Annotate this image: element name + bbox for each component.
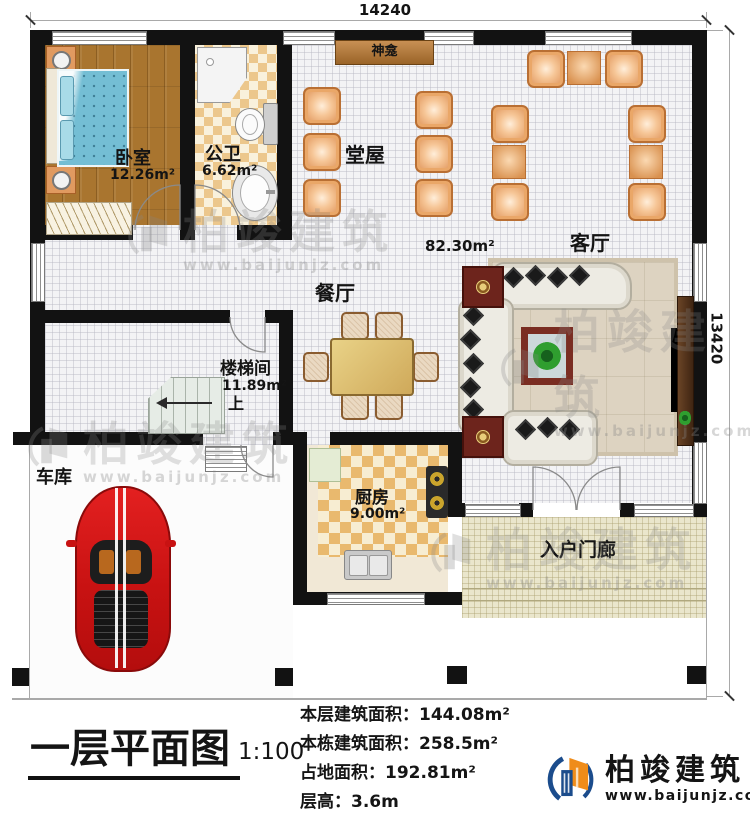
side-table (462, 266, 504, 308)
nightstand (46, 166, 76, 194)
dining-table (330, 338, 414, 396)
floorplan-canvas: 14240 13420 (0, 0, 750, 817)
hall-chair (303, 179, 341, 217)
kitchen-label: 厨房 (355, 489, 389, 508)
stairs-direction-line (166, 402, 212, 404)
plan-stats: 本层建筑面积：144.08m² 本栋建筑面积：258.5m² 占地面积：192.… (300, 701, 510, 817)
car-mirror (66, 540, 77, 547)
side-table (462, 416, 504, 458)
kitchen-area: 9.00m² (350, 507, 405, 522)
rosette-icon (476, 430, 490, 444)
toilet (235, 108, 265, 141)
hall-tea-table (492, 145, 526, 179)
dining-chair (341, 312, 369, 340)
bedroom-label: 卧室 (115, 149, 151, 169)
stat-line: 占地面积：192.81m² (300, 759, 510, 788)
stat-line: 本栋建筑面积：258.5m² (300, 730, 510, 759)
hall-tea-table (629, 145, 663, 179)
car-stripe (115, 488, 118, 668)
car-stripe (123, 488, 126, 668)
porch-label: 入户门廊 (540, 540, 616, 561)
stairs-up-label: 上 (228, 395, 244, 413)
burner-icon (430, 496, 444, 510)
hall-chair (628, 105, 666, 143)
hall-chair (415, 135, 453, 173)
bedroom-area: 12.26m² (110, 168, 175, 183)
dining-chair (375, 392, 403, 420)
living-label: 客厅 (570, 232, 610, 254)
car-windshield (90, 540, 152, 584)
stairwell-label: 楼梯间 (220, 360, 271, 379)
burner-icon (430, 472, 444, 486)
plan-scale: 1:100 (238, 740, 304, 765)
toilet-bowl (242, 114, 258, 135)
brand-website[interactable]: www.baijunjz.com (605, 789, 750, 804)
hall-chair (491, 105, 529, 143)
kitchen-counter (309, 448, 341, 482)
sink-basin (369, 555, 388, 576)
brand-logo: 柏竣建筑 www.baijunjz.com (545, 748, 750, 810)
car-seat (99, 550, 114, 574)
shrine-cabinet: 神龛 (335, 40, 434, 65)
hall-chair (628, 183, 666, 221)
hall-area: 82.30m² (425, 238, 495, 255)
sink-basin (349, 555, 368, 576)
pillow (60, 120, 74, 160)
stove (426, 466, 448, 518)
tv-icon (671, 328, 677, 412)
dining-label: 餐厅 (315, 282, 355, 304)
dining-chair (413, 352, 439, 382)
hall-chair (303, 87, 341, 125)
shrine-label: 神龛 (371, 45, 397, 59)
plant-icon (679, 410, 691, 426)
stairs-arrow-icon (156, 397, 167, 409)
car-mirror (165, 540, 176, 547)
shower-drain-icon (206, 58, 214, 66)
faucet-icon (266, 190, 275, 194)
rosette-icon (476, 280, 490, 294)
kitchen-sink (344, 550, 392, 580)
hall-chair (303, 133, 341, 171)
plan-title: 一层平面图 (28, 727, 240, 780)
car (75, 486, 171, 672)
hall-chair (491, 183, 529, 221)
plant-icon (533, 342, 561, 370)
garage-label: 车库 (36, 468, 72, 488)
dining-chair (375, 312, 403, 340)
hall-chair (527, 50, 565, 88)
hall-chair (415, 91, 453, 129)
hall-label: 堂屋 (345, 144, 385, 166)
dining-chair (341, 392, 369, 420)
stat-line: 层高：3.6m (300, 788, 510, 817)
stairwell-area: 11.89m² (222, 379, 287, 394)
bathroom-area: 6.62m² (202, 164, 257, 179)
toilet-tank (263, 103, 278, 145)
stat-line: 本层建筑面积：144.08m² (300, 701, 510, 730)
bathroom-label: 公卫 (205, 145, 241, 165)
dining-chair (303, 352, 329, 382)
car-seat (126, 550, 141, 574)
pillow (60, 76, 74, 116)
sofa-bottom (502, 410, 598, 466)
brand-logo-icon (545, 748, 597, 810)
wardrobe (46, 202, 132, 235)
hall-tea-table (567, 51, 601, 85)
hall-chair (415, 179, 453, 217)
brand-name: 柏竣建筑 (605, 754, 750, 787)
lamp-icon (52, 171, 71, 190)
car-engine-cover (94, 590, 148, 648)
hall-chair (605, 50, 643, 88)
